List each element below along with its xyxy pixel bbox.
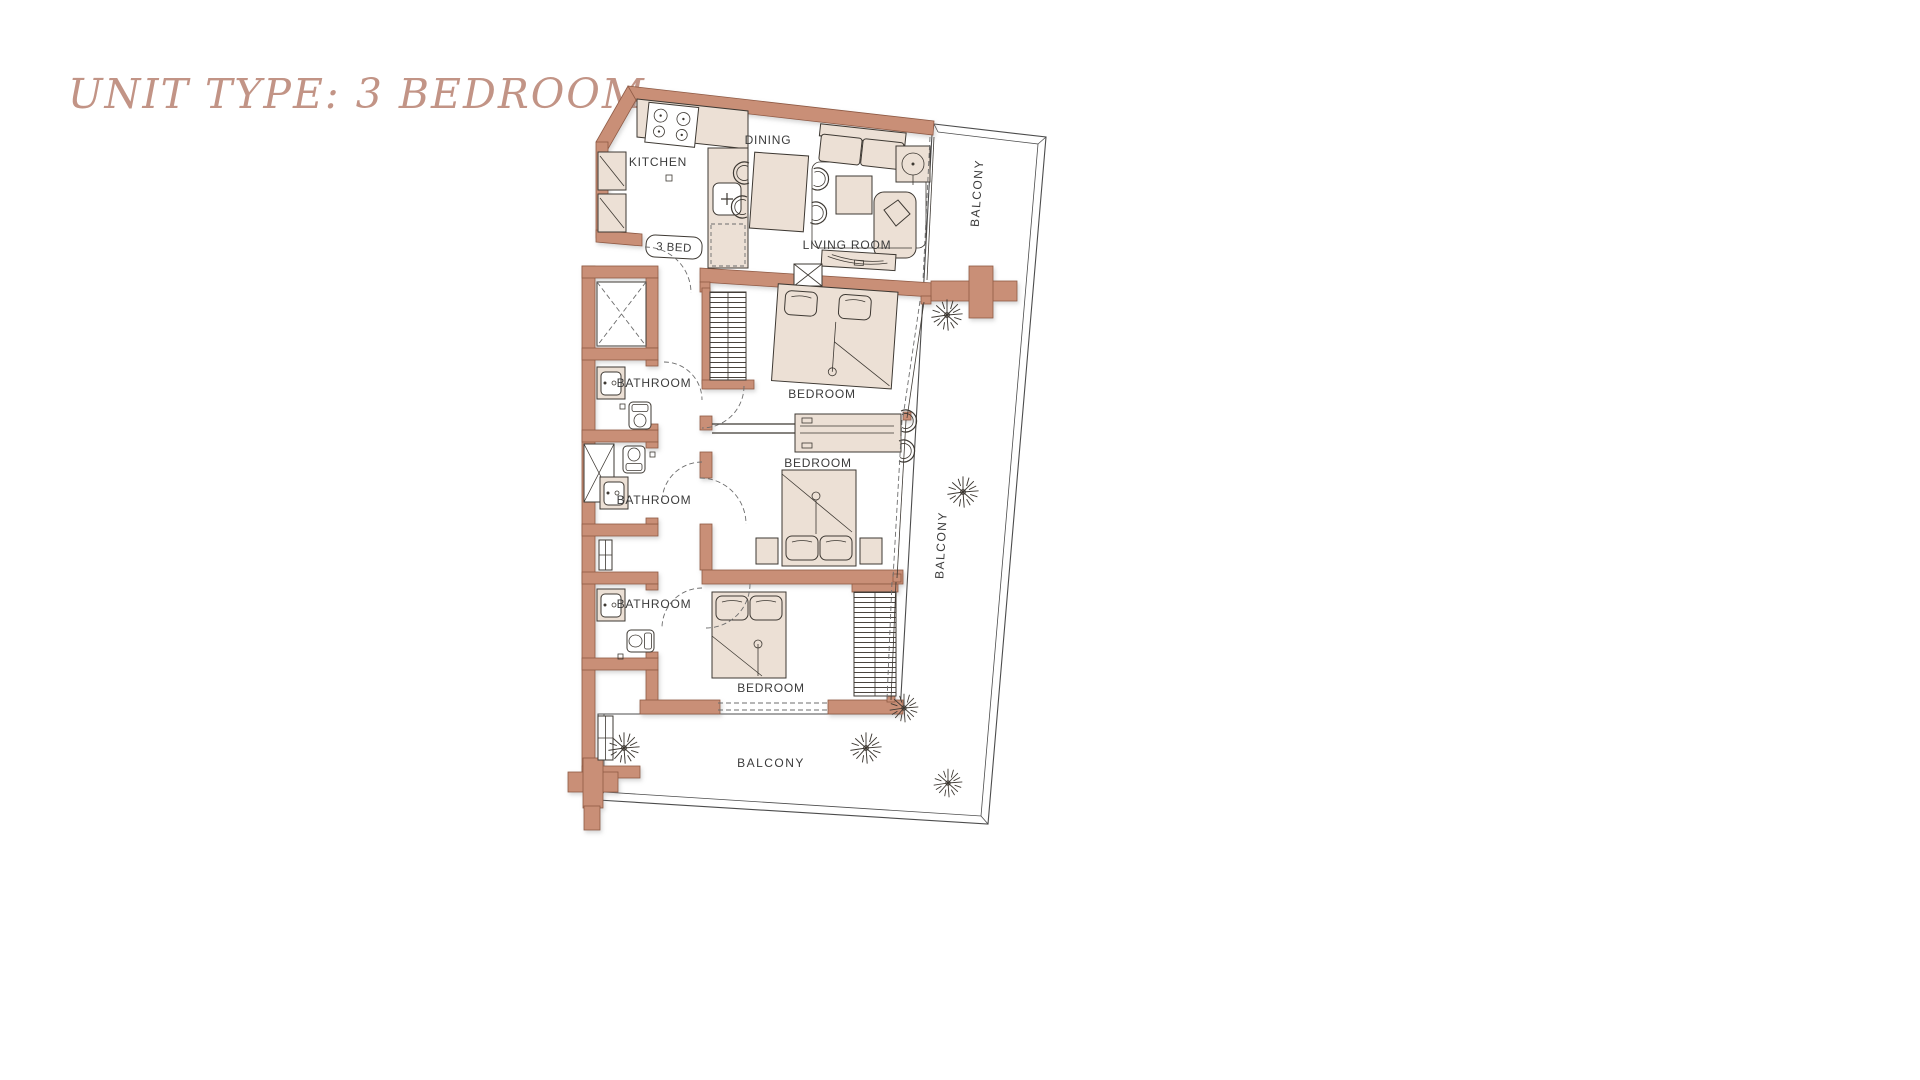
stove-icon (645, 102, 699, 147)
toilet-icon (623, 446, 645, 473)
wall-spine-left (582, 266, 595, 778)
bedroom-2: BEDROOM (756, 456, 882, 566)
desk-area (712, 410, 917, 462)
wall-bedroom2-3 (702, 570, 903, 584)
bedroom-2-label: BEDROOM (784, 456, 852, 470)
floor-plan-page: UNIT TYPE: 3 BEDROOM (0, 0, 1920, 1080)
floor-plan: KITCHEN DINING (0, 0, 1920, 1080)
bathroom-2-label: BATHROOM (617, 493, 692, 507)
unit-badge: 3 BED (645, 235, 702, 260)
living-room-label: LIVING ROOM (803, 238, 892, 252)
side-table (756, 538, 778, 564)
lamp-table (896, 146, 930, 185)
balcony-bottom-label: BALCONY (737, 756, 805, 770)
bathroom-1: BATHROOM (597, 367, 691, 429)
toilet-icon (627, 630, 654, 652)
living-room: LIVING ROOM (794, 124, 930, 286)
bathroom-3: BATHROOM (597, 589, 691, 659)
bedroom-3: BEDROOM (712, 592, 896, 696)
dishwasher (711, 224, 745, 266)
elevator (597, 282, 646, 346)
hall-closet (599, 540, 612, 570)
dining-chair (810, 202, 827, 225)
kitchen-outlet (666, 175, 672, 181)
toilet-icon (629, 402, 651, 429)
bedroom-3-label: BEDROOM (737, 681, 805, 695)
bed-double (772, 284, 898, 389)
bathroom-3-label: BATHROOM (617, 597, 692, 611)
dining-chair (812, 168, 829, 191)
bedroom-1-label: BEDROOM (788, 387, 856, 401)
coffee-table (836, 176, 872, 214)
dining-label: DINING (745, 133, 792, 147)
unit-badge-label: 3 BED (656, 241, 692, 255)
kitchen-sink-icon (713, 183, 741, 215)
side-table (860, 538, 882, 564)
dining-table (749, 152, 808, 232)
column-brace (794, 264, 822, 286)
bathroom-1-label: BATHROOM (617, 376, 692, 390)
kitchen-label: KITCHEN (629, 155, 687, 169)
laundry (598, 716, 613, 760)
